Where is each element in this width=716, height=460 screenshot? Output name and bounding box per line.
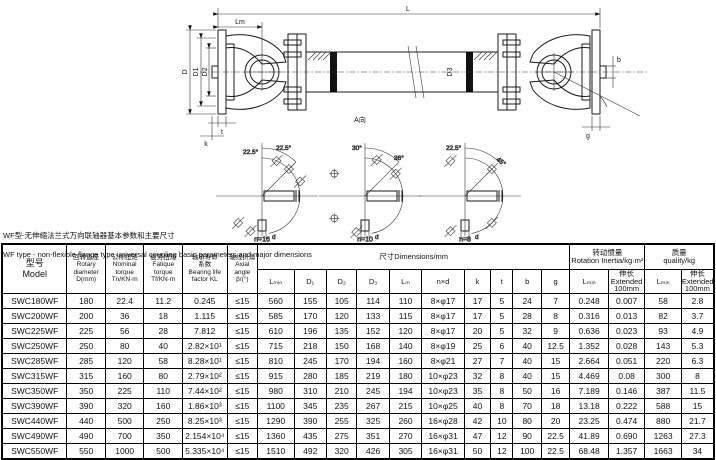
data-cell: 15: [541, 368, 569, 383]
data-cell: 15: [681, 398, 714, 413]
dim-label-D1: D1: [193, 67, 200, 76]
data-cell: 27: [464, 353, 490, 368]
hole-dim-label: d: [475, 234, 479, 241]
data-cell: 110: [144, 383, 183, 398]
data-cell: ≤15: [227, 323, 257, 338]
table-row: SWC550WF55010005005.335×10⁴≤151510492320…: [2, 443, 714, 459]
data-cell: 200: [67, 308, 106, 323]
data-cell: 500: [144, 443, 183, 459]
data-cell: 7: [541, 293, 569, 308]
model-cell: SWC390WF: [2, 398, 67, 413]
data-cell: 1.86×10³: [182, 398, 227, 413]
col-header-axial-angle: 轴线折角 Axial angle β/(°): [227, 244, 257, 293]
table-row: SWC180WF18022.411.20.245≤155601551051141…: [2, 293, 714, 308]
model-cell: SWC180WF: [2, 293, 67, 308]
data-cell: 5: [491, 323, 513, 338]
table-row: SWC225WF22556287.812≤156101961351521208×…: [2, 323, 714, 338]
data-cell: 215: [389, 398, 421, 413]
data-cell: 1263: [645, 428, 682, 443]
data-cell: 7.189: [570, 383, 609, 398]
dim-label-b: b: [617, 57, 621, 64]
data-cell: 180: [67, 293, 106, 308]
col-header-inertia-lmin: Lₘᵢₙ: [570, 270, 609, 294]
data-cell: ≤15: [227, 368, 257, 383]
angle-label: 30°: [352, 144, 362, 152]
data-cell: 25: [464, 338, 490, 353]
data-cell: 8×φ17: [422, 323, 465, 338]
data-cell: 5: [491, 308, 513, 323]
data-cell: ≤15: [227, 293, 257, 308]
data-cell: 22.4: [105, 293, 144, 308]
data-cell: 320: [326, 443, 356, 459]
data-cell: 2.82×10¹: [182, 338, 227, 353]
data-cell: 1.357: [608, 443, 645, 459]
data-cell: 160: [144, 398, 183, 413]
data-cell: 150: [326, 338, 356, 353]
data-cell: 390: [67, 398, 106, 413]
data-cell: 235: [326, 398, 356, 413]
data-cell: 0.08: [608, 368, 645, 383]
data-cell: 41.89: [570, 428, 609, 443]
data-cell: ≤15: [227, 413, 257, 428]
data-cell: 980: [258, 383, 295, 398]
col-header-d1: D₁: [294, 270, 326, 294]
col-header-k: k: [464, 270, 490, 294]
data-cell: 3.7: [681, 308, 714, 323]
data-cell: 440: [67, 413, 106, 428]
data-cell: ≤15: [227, 383, 257, 398]
data-cell: 10: [491, 413, 513, 428]
data-cell: ≤15: [227, 338, 257, 353]
data-cell: 8×φ17: [422, 308, 465, 323]
col-header-inertia-extended: 伸长 Extended 100mm: [608, 270, 645, 294]
data-cell: 250: [67, 338, 106, 353]
data-cell: 58: [645, 293, 682, 308]
data-cell: ≤15: [227, 353, 257, 368]
data-cell: 56: [105, 323, 144, 338]
data-cell: 12.5: [541, 338, 569, 353]
data-cell: 2.664: [570, 353, 609, 368]
data-cell: 93: [645, 323, 682, 338]
data-cell: 0.222: [608, 398, 645, 413]
data-cell: 8: [541, 308, 569, 323]
table-row: SWC315WF315160802.79×10²≤159152801852191…: [2, 368, 714, 383]
data-cell: 0.245: [182, 293, 227, 308]
data-cell: 120: [326, 308, 356, 323]
col-header-d2: D₂: [326, 270, 356, 294]
data-cell: 40: [513, 353, 541, 368]
data-cell: 135: [326, 323, 356, 338]
data-cell: 345: [294, 398, 326, 413]
data-cell: 260: [389, 413, 421, 428]
data-cell: 1510: [258, 443, 295, 459]
col-header-g: g: [541, 270, 569, 294]
col-header-quality-lmin: Lₘᵢₙ: [645, 270, 682, 294]
data-cell: 40: [144, 338, 183, 353]
data-cell: 492: [294, 443, 326, 459]
data-cell: 36: [105, 308, 144, 323]
data-cell: 22.5: [541, 428, 569, 443]
data-cell: 1663: [645, 443, 682, 459]
data-cell: 35: [464, 383, 490, 398]
data-cell: 351: [357, 428, 389, 443]
data-cell: 160: [389, 353, 421, 368]
data-cell: 390: [294, 413, 326, 428]
data-cell: 5.3: [681, 338, 714, 353]
data-cell: 24: [513, 293, 541, 308]
data-cell: 143: [645, 338, 682, 353]
data-cell: 5: [491, 293, 513, 308]
data-cell: 0.636: [570, 323, 609, 338]
data-cell: 1360: [258, 428, 295, 443]
data-cell: 350: [67, 383, 106, 398]
model-cell: SWC440WF: [2, 413, 67, 428]
data-cell: 2.79×10²: [182, 368, 227, 383]
data-cell: 267: [357, 398, 389, 413]
table-row: SWC390WF3903201601.86×10³≤15110034523526…: [2, 398, 714, 413]
data-cell: 2.154×10⁴: [182, 428, 227, 443]
model-cell: SWC225WF: [2, 323, 67, 338]
data-cell: 27.3: [681, 428, 714, 443]
table-row: SWC350WF3502251107.44×10²≤15980310210245…: [2, 383, 714, 398]
data-cell: 275: [326, 428, 356, 443]
data-cell: 2.8: [681, 293, 714, 308]
angle-label: 22.5°: [446, 144, 462, 152]
data-cell: 17: [464, 293, 490, 308]
col-header-rotary-diameter: 回转直径 Rotary diameter D(mm): [67, 244, 106, 293]
data-cell: ≤15: [227, 443, 257, 459]
data-cell: 285: [67, 353, 106, 368]
model-cell: SWC250WF: [2, 338, 67, 353]
data-cell: 11.2: [144, 293, 183, 308]
bolt-view-n8: 22.5° 45° d n=8: [419, 143, 521, 242]
data-cell: 300: [645, 368, 682, 383]
data-cell: 560: [258, 293, 295, 308]
data-cell: 47: [464, 428, 490, 443]
data-cell: 4.469: [570, 368, 609, 383]
col-group-dimensions: 尺寸Dimensions/mm: [258, 244, 570, 270]
data-cell: 8×φ19: [422, 338, 465, 353]
data-cell: 114: [357, 293, 389, 308]
data-cell: 7.812: [182, 323, 227, 338]
data-cell: 50: [464, 443, 490, 459]
data-cell: 23.25: [570, 413, 609, 428]
data-cell: 21.7: [681, 413, 714, 428]
data-cell: 8×φ17: [422, 293, 465, 308]
data-cell: 8×φ21: [422, 353, 465, 368]
dim-label-D3: D3: [447, 67, 454, 76]
bolt-count-label: n=8: [459, 237, 471, 243]
data-cell: 220: [645, 353, 682, 368]
angle-label: 36°: [394, 154, 404, 162]
data-cell: 250: [144, 413, 183, 428]
model-cell: SWC550WF: [2, 443, 67, 459]
data-cell: 194: [357, 353, 389, 368]
data-cell: 0.007: [608, 293, 645, 308]
data-cell: 90: [513, 428, 541, 443]
sheet-title-zh: WF型-无伸缩法兰式万向联轴器基本参数和主要尺寸: [3, 231, 403, 241]
data-cell: 245: [294, 353, 326, 368]
data-cell: 16×φ31: [422, 443, 465, 459]
data-cell: 8: [491, 368, 513, 383]
dim-label-g: g: [586, 133, 590, 140]
data-cell: 13.18: [570, 398, 609, 413]
shaft-assembly: [200, 30, 648, 116]
data-cell: 40: [513, 338, 541, 353]
data-cell: 325: [357, 413, 389, 428]
data-cell: 28: [144, 323, 183, 338]
col-header-d3: D₃: [357, 270, 389, 294]
data-cell: 80: [144, 368, 183, 383]
col-header-fatigue-torque: 疲劳扭矩 Fatique torque Tf/KN·m: [144, 244, 183, 293]
data-cell: 0.690: [608, 428, 645, 443]
table-body: SWC180WF18022.411.20.245≤155601551051141…: [2, 293, 714, 459]
data-cell: 12: [491, 428, 513, 443]
data-cell: 880: [645, 413, 682, 428]
col-header-quality-extended: 伸长 Extended 100mm: [681, 270, 714, 294]
data-cell: 6.3: [681, 353, 714, 368]
data-cell: 7: [491, 353, 513, 368]
data-cell: 1.115: [182, 308, 227, 323]
data-cell: 426: [357, 443, 389, 459]
data-cell: 0.474: [608, 413, 645, 428]
data-cell: 110: [389, 293, 421, 308]
data-cell: 8.25×10³: [182, 413, 227, 428]
data-cell: 160: [105, 368, 144, 383]
data-cell: 1000: [105, 443, 144, 459]
col-header-t: t: [491, 270, 513, 294]
data-cell: 1.352: [570, 338, 609, 353]
dim-label-k: k: [204, 141, 208, 148]
data-cell: ≤15: [227, 398, 257, 413]
data-cell: ≤15: [227, 428, 257, 443]
data-cell: 700: [105, 428, 144, 443]
data-cell: 196: [294, 323, 326, 338]
col-header-model: 型号 Model: [2, 244, 67, 293]
data-cell: 12: [491, 443, 513, 459]
data-cell: 9: [541, 323, 569, 338]
data-cell: 18: [144, 308, 183, 323]
model-cell: SWC490WF: [2, 428, 67, 443]
data-cell: 194: [389, 383, 421, 398]
data-cell: 40: [513, 368, 541, 383]
model-cell: SWC285WF: [2, 353, 67, 368]
angle-label: 45°: [495, 155, 508, 168]
table-row: SWC440WF4405002508.25×10³≤15129039025532…: [2, 413, 714, 428]
data-cell: 225: [67, 323, 106, 338]
dim-label-t: t: [221, 129, 223, 136]
data-cell: 185: [326, 368, 356, 383]
data-cell: 270: [389, 428, 421, 443]
data-cell: 70: [513, 398, 541, 413]
data-cell: 500: [105, 413, 144, 428]
data-cell: 0.023: [608, 323, 645, 338]
data-cell: 42: [464, 413, 490, 428]
data-cell: 320: [105, 398, 144, 413]
table-row: SWC200WF20036181.115≤155851701201331158×…: [2, 308, 714, 323]
data-cell: 8: [681, 368, 714, 383]
col-group-rotation-inertia: 转动惯量 Rotation Inertia/kg·m²: [570, 244, 645, 270]
data-cell: 310: [294, 383, 326, 398]
data-cell: 16×φ31: [422, 428, 465, 443]
data-cell: 168: [357, 338, 389, 353]
data-cell: 280: [294, 368, 326, 383]
dim-label-L: L: [406, 6, 410, 13]
table-row: SWC490WF4907003502.154×10⁴≤1513604352753…: [2, 428, 714, 443]
data-cell: 0.028: [608, 338, 645, 353]
data-cell: 17: [464, 308, 490, 323]
data-cell: 225: [105, 383, 144, 398]
data-cell: 387: [645, 383, 682, 398]
data-cell: 490: [67, 428, 106, 443]
data-cell: 6: [491, 338, 513, 353]
data-cell: 715: [258, 338, 295, 353]
data-cell: 140: [389, 338, 421, 353]
data-cell: 100: [513, 443, 541, 459]
col-header-nxd: n×d: [422, 270, 465, 294]
model-cell: SWC315WF: [2, 368, 67, 383]
data-cell: 5.335×10⁴: [182, 443, 227, 459]
data-cell: 15: [541, 353, 569, 368]
spec-table: 型号 Model 回转直径 Rotary diameter D(mm) 公称扭矩…: [1, 243, 715, 460]
data-cell: 120: [105, 353, 144, 368]
data-cell: 585: [258, 308, 295, 323]
col-header-b: b: [513, 270, 541, 294]
data-cell: 50: [513, 383, 541, 398]
data-cell: 20: [464, 323, 490, 338]
model-cell: SWC200WF: [2, 308, 67, 323]
data-cell: 0.316: [570, 308, 609, 323]
data-cell: 350: [144, 428, 183, 443]
data-cell: 152: [357, 323, 389, 338]
data-cell: 7.44×10²: [182, 383, 227, 398]
data-cell: 0.013: [608, 308, 645, 323]
data-cell: 180: [389, 368, 421, 383]
dim-label-D2: D2: [202, 67, 209, 76]
data-cell: 170: [326, 353, 356, 368]
data-cell: 219: [357, 368, 389, 383]
data-cell: 0.051: [608, 353, 645, 368]
data-cell: ≤15: [227, 308, 257, 323]
data-cell: 435: [294, 428, 326, 443]
data-cell: 0.248: [570, 293, 609, 308]
dim-label-Lm: Lm: [235, 19, 245, 26]
data-cell: 16×φ28: [422, 413, 465, 428]
data-cell: 32: [464, 368, 490, 383]
data-cell: 40: [464, 398, 490, 413]
table-row: SWC250WF25080402.82×10¹≤1571521815016814…: [2, 338, 714, 353]
data-cell: 18: [541, 398, 569, 413]
col-header-bearing-life: 轴承寿命 系数 Bearing life factor KL: [182, 244, 227, 293]
data-cell: 210: [326, 383, 356, 398]
data-cell: 105: [326, 293, 356, 308]
data-cell: 170: [294, 308, 326, 323]
data-cell: 115: [389, 308, 421, 323]
view-a-label: A向: [354, 115, 366, 124]
data-cell: 133: [357, 308, 389, 323]
data-cell: 155: [294, 293, 326, 308]
data-cell: 915: [258, 368, 295, 383]
data-cell: 315: [67, 368, 106, 383]
col-header-lm: Lₘ: [389, 270, 421, 294]
data-cell: 255: [326, 413, 356, 428]
data-cell: 68.48: [570, 443, 609, 459]
data-cell: 1290: [258, 413, 295, 428]
col-header-nominal-torque: 公称扭矩 Nominal torque Tn/KN·m: [105, 244, 144, 293]
data-cell: 34: [681, 443, 714, 459]
angle-label: 22.5°: [243, 148, 259, 156]
table-row: SWC285WF285120588.28×10¹≤158102451701941…: [2, 353, 714, 368]
data-cell: 10×φ25: [422, 398, 465, 413]
data-cell: 80: [105, 338, 144, 353]
data-cell: 0.146: [608, 383, 645, 398]
data-cell: 8: [491, 398, 513, 413]
table-header: 型号 Model 回转直径 Rotary diameter D(mm) 公称扭矩…: [2, 244, 714, 293]
col-header-lmin: Lₘᵢₙ: [258, 270, 295, 294]
model-cell: SWC350WF: [2, 383, 67, 398]
data-cell: 810: [258, 353, 295, 368]
data-cell: 28: [513, 308, 541, 323]
dim-label-D: D: [182, 69, 189, 74]
data-cell: 8.28×10¹: [182, 353, 227, 368]
data-cell: 8: [491, 383, 513, 398]
data-cell: 1100: [258, 398, 295, 413]
data-cell: 10×φ23: [422, 368, 465, 383]
data-cell: 16: [541, 383, 569, 398]
data-cell: 22.5: [541, 443, 569, 459]
col-group-quality: 质量 quality/kg: [645, 244, 714, 270]
data-cell: 10×φ23: [422, 383, 465, 398]
data-cell: 588: [645, 398, 682, 413]
data-cell: 550: [67, 443, 106, 459]
data-cell: 82: [645, 308, 682, 323]
data-cell: 218: [294, 338, 326, 353]
data-cell: 610: [258, 323, 295, 338]
data-cell: 305: [389, 443, 421, 459]
data-cell: 245: [357, 383, 389, 398]
data-cell: 20: [541, 413, 569, 428]
data-cell: 4.9: [681, 323, 714, 338]
data-cell: 80: [513, 413, 541, 428]
angle-label: 22.5°: [276, 144, 292, 152]
data-cell: 11.5: [681, 383, 714, 398]
data-cell: 32: [513, 323, 541, 338]
data-cell: 120: [389, 323, 421, 338]
data-cell: 58: [144, 353, 183, 368]
technical-drawing: L Lm D D1 D2 D3 t k g b A向 22.5° 22.5° d…: [0, 0, 716, 242]
